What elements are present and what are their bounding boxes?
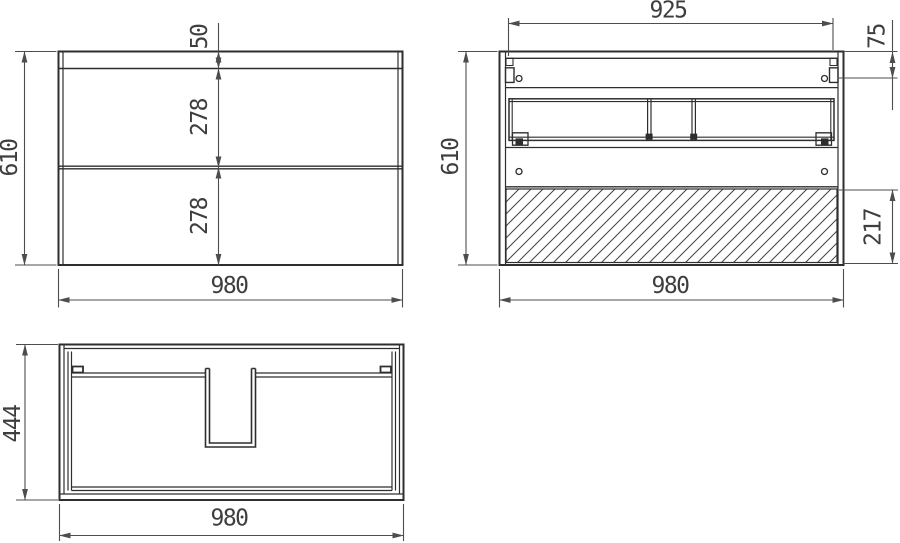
top-rail-clips bbox=[73, 367, 392, 373]
back-opening-dividers bbox=[648, 99, 696, 141]
hatched-bottom-panel bbox=[506, 189, 837, 263]
top-view: 444 980 bbox=[0, 345, 404, 542]
dim-label-back-bottom-panel: 217 bbox=[861, 208, 887, 246]
top-view-dimensions: 444 980 bbox=[0, 345, 404, 542]
dim-label-back-height: 610 bbox=[438, 138, 464, 176]
front-drawer-divider bbox=[59, 166, 403, 169]
top-drawer-back-rail bbox=[72, 373, 393, 377]
back-corner-stubs bbox=[506, 58, 837, 65]
drawer-slide-bracket-fills bbox=[516, 138, 829, 144]
screw-hole-bottom-right bbox=[822, 169, 828, 175]
dim-label-back-hanger-offset: 75 bbox=[865, 24, 891, 49]
front-cabinet-outline bbox=[59, 52, 403, 266]
divider-feet bbox=[646, 134, 698, 140]
back-view: 925 75 610 217 980 bbox=[438, 0, 898, 308]
dim-label-front-lower-drawer: 278 bbox=[187, 197, 213, 235]
drawing-canvas: 610 50 278 278 980 925 bbox=[0, 0, 900, 543]
top-side-panel-lines bbox=[64, 345, 400, 494]
dim-label-front-upper-drawer: 278 bbox=[187, 98, 213, 136]
screw-hole-top-right bbox=[822, 76, 828, 82]
dim-label-front-width: 980 bbox=[210, 273, 248, 299]
dim-label-top-depth: 444 bbox=[0, 405, 26, 443]
back-opening-inner-lines bbox=[509, 99, 834, 141]
dim-label-back-hanger-span: 925 bbox=[649, 0, 686, 24]
screw-hole-bottom-left bbox=[516, 169, 522, 175]
siphon-cutout bbox=[206, 369, 256, 448]
technical-drawing: 610 50 278 278 980 925 bbox=[0, 0, 900, 543]
dim-label-front-height: 610 bbox=[0, 139, 23, 177]
top-cabinet-outline bbox=[60, 345, 404, 501]
back-rail-lines bbox=[506, 58, 839, 187]
front-view: 610 50 278 278 980 bbox=[0, 23, 403, 308]
back-opening-frame bbox=[509, 99, 834, 141]
dim-label-top-width: 980 bbox=[210, 506, 248, 532]
drawer-slide-brackets bbox=[513, 133, 832, 145]
dim-label-back-width: 980 bbox=[651, 273, 689, 299]
back-hanger-brackets bbox=[506, 68, 839, 83]
top-drawer-front-wall bbox=[72, 487, 393, 491]
dim-label-front-top-rail: 50 bbox=[187, 24, 213, 49]
top-drawer-side-walls bbox=[68, 352, 396, 491]
screw-hole-top-left bbox=[516, 76, 522, 82]
front-side-panel-lines bbox=[63, 52, 398, 265]
